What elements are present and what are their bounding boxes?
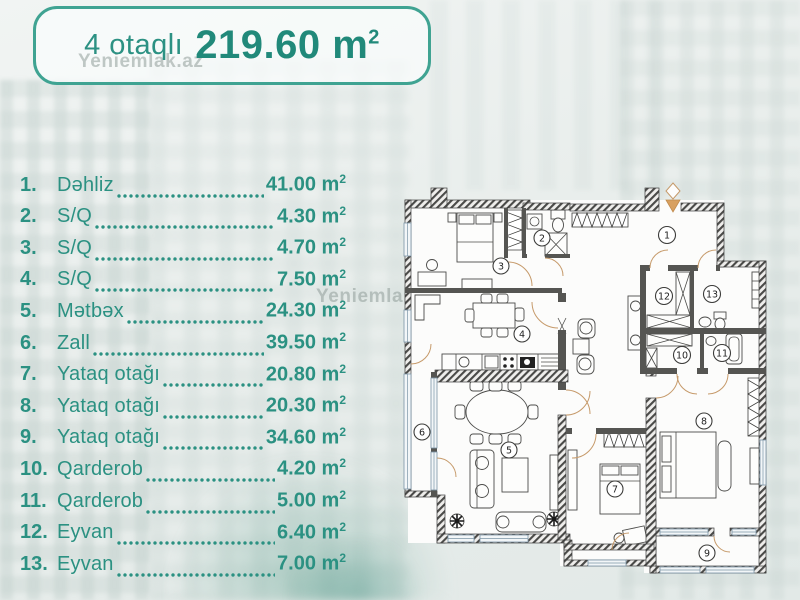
plan-room-marker-1: 1 bbox=[659, 227, 676, 244]
svg-text:2: 2 bbox=[539, 234, 545, 245]
room-list-item: 12.Eyvan6.40 m2 bbox=[20, 520, 346, 552]
dotted-leader bbox=[94, 257, 275, 261]
dotted-leader bbox=[162, 383, 264, 387]
flyer: 1 2 3 4 5 6 7 8 9 10 11 12 13 Yeniemlak.… bbox=[0, 0, 800, 600]
room-list-item: 1.Dəhliz41.00 m2 bbox=[20, 172, 346, 204]
dotted-leader bbox=[94, 288, 275, 292]
room-area: 24.30 m2 bbox=[266, 298, 346, 323]
plan-room-marker-8: 8 bbox=[696, 413, 712, 429]
room-number: 9. bbox=[20, 426, 57, 449]
room-number: 7. bbox=[20, 363, 57, 386]
room-number: 3. bbox=[20, 237, 57, 260]
room-list-item: 13.Eyvan7.00 m2 bbox=[20, 551, 346, 583]
plan-room-marker-4: 4 bbox=[514, 326, 530, 342]
room-name: Eyvan bbox=[57, 553, 114, 576]
dotted-leader bbox=[92, 352, 264, 356]
svg-text:8: 8 bbox=[701, 417, 707, 428]
svg-text:7: 7 bbox=[612, 485, 618, 496]
room-name: Yataq otağı bbox=[57, 363, 160, 386]
room-name: Yataq otağı bbox=[57, 395, 160, 418]
room-area: 41.00 m2 bbox=[266, 172, 346, 197]
dotted-leader bbox=[94, 225, 275, 229]
page-title-area: 219.60 m2 bbox=[195, 23, 380, 68]
room-area: 4.70 m2 bbox=[277, 235, 346, 260]
room-list-item: 8.Yataq otağı20.30 m2 bbox=[20, 393, 346, 425]
svg-text:3: 3 bbox=[498, 262, 504, 273]
room-area: 39.50 m2 bbox=[266, 330, 346, 355]
room-name: S/Q bbox=[57, 237, 92, 260]
svg-text:6: 6 bbox=[419, 428, 425, 439]
room-list-item: 4.S/Q7.50 m2 bbox=[20, 267, 346, 299]
dotted-leader bbox=[162, 415, 264, 419]
plant-icon bbox=[450, 514, 464, 528]
plan-room-marker-2: 2 bbox=[534, 230, 550, 246]
room-list-item: 6.Zall39.50 m2 bbox=[20, 330, 346, 362]
room-name: Eyvan bbox=[57, 521, 114, 544]
dotted-leader bbox=[145, 510, 275, 514]
room-number: 10. bbox=[20, 458, 57, 481]
area-unit: m2 bbox=[332, 23, 380, 67]
room-area: 5.00 m2 bbox=[277, 488, 346, 513]
svg-text:5: 5 bbox=[506, 446, 512, 457]
plan-room-marker-12: 12 bbox=[656, 288, 673, 305]
room-area: 7.00 m2 bbox=[277, 551, 346, 576]
plan-room-marker-5: 5 bbox=[501, 442, 517, 458]
dotted-leader bbox=[116, 573, 275, 577]
room-number: 4. bbox=[20, 268, 57, 291]
room-number: 2. bbox=[20, 205, 57, 228]
room-area: 4.30 m2 bbox=[277, 204, 346, 229]
dotted-leader bbox=[145, 478, 275, 482]
room-list-item: 11.Qarderob5.00 m2 bbox=[20, 488, 346, 520]
plan-room-marker-10: 10 bbox=[674, 347, 691, 364]
svg-text:9: 9 bbox=[704, 549, 710, 560]
plan-room-marker-7: 7 bbox=[607, 481, 623, 497]
room-area: 20.30 m2 bbox=[266, 393, 346, 418]
plan-room-marker-6: 6 bbox=[414, 424, 430, 440]
room-number: 11. bbox=[20, 490, 57, 513]
room-list-item: 10.Qarderob4.20 m2 bbox=[20, 456, 346, 488]
dotted-leader bbox=[116, 541, 275, 545]
svg-text:11: 11 bbox=[716, 349, 728, 360]
svg-text:12: 12 bbox=[658, 292, 670, 303]
plan-room-marker-3: 3 bbox=[493, 258, 509, 274]
room-name: S/Q bbox=[57, 205, 92, 228]
room-number: 5. bbox=[20, 300, 57, 323]
room-name: Qarderob bbox=[57, 458, 143, 481]
room-list-item: 3.S/Q4.70 m2 bbox=[20, 235, 346, 267]
room-area: 20.80 m2 bbox=[266, 362, 346, 387]
room-name: Qarderob bbox=[57, 490, 143, 513]
room-list-item: 2.S/Q4.30 m2 bbox=[20, 204, 346, 236]
svg-text:4: 4 bbox=[519, 330, 525, 341]
plan-room-marker-9: 9 bbox=[699, 545, 715, 561]
page-title-rooms: 4 otaqlı bbox=[84, 29, 183, 62]
room-area: 4.20 m2 bbox=[277, 456, 346, 481]
room-number: 1. bbox=[20, 174, 57, 197]
room-list-item: 7.Yataq otağı20.80 m2 bbox=[20, 362, 346, 394]
room-name: Dəhliz bbox=[57, 174, 114, 197]
dotted-leader bbox=[162, 446, 264, 450]
svg-text:1: 1 bbox=[664, 231, 670, 242]
plan-room-marker-13: 13 bbox=[704, 286, 721, 303]
svg-text:13: 13 bbox=[706, 290, 718, 301]
room-list-item: 5.Mətbəx24.30 m2 bbox=[20, 298, 346, 330]
room-area: 7.50 m2 bbox=[277, 267, 346, 292]
svg-text:10: 10 bbox=[676, 351, 688, 362]
room-name: Mətbəx bbox=[57, 300, 124, 323]
room-number: 8. bbox=[20, 395, 57, 418]
title-box: Yeniemlak.az 4 otaqlı 219.60 m2 bbox=[33, 6, 431, 85]
dotted-leader bbox=[116, 194, 264, 198]
room-name: Yataq otağı bbox=[57, 426, 160, 449]
room-list-item: 9.Yataq otağı34.60 m2 bbox=[20, 425, 346, 457]
room-name: Zall bbox=[57, 332, 90, 355]
room-name: S/Q bbox=[57, 268, 92, 291]
room-area: 34.60 m2 bbox=[266, 425, 346, 450]
room-number: 12. bbox=[20, 521, 57, 544]
room-area: 6.40 m2 bbox=[277, 520, 346, 545]
plan-room-marker-11: 11 bbox=[714, 345, 731, 362]
dotted-leader bbox=[126, 320, 264, 324]
room-number: 13. bbox=[20, 553, 57, 576]
room-number: 6. bbox=[20, 332, 57, 355]
room-list: 1.Dəhliz41.00 m2 2.S/Q4.30 m2 3.S/Q4.70 … bbox=[20, 172, 346, 583]
